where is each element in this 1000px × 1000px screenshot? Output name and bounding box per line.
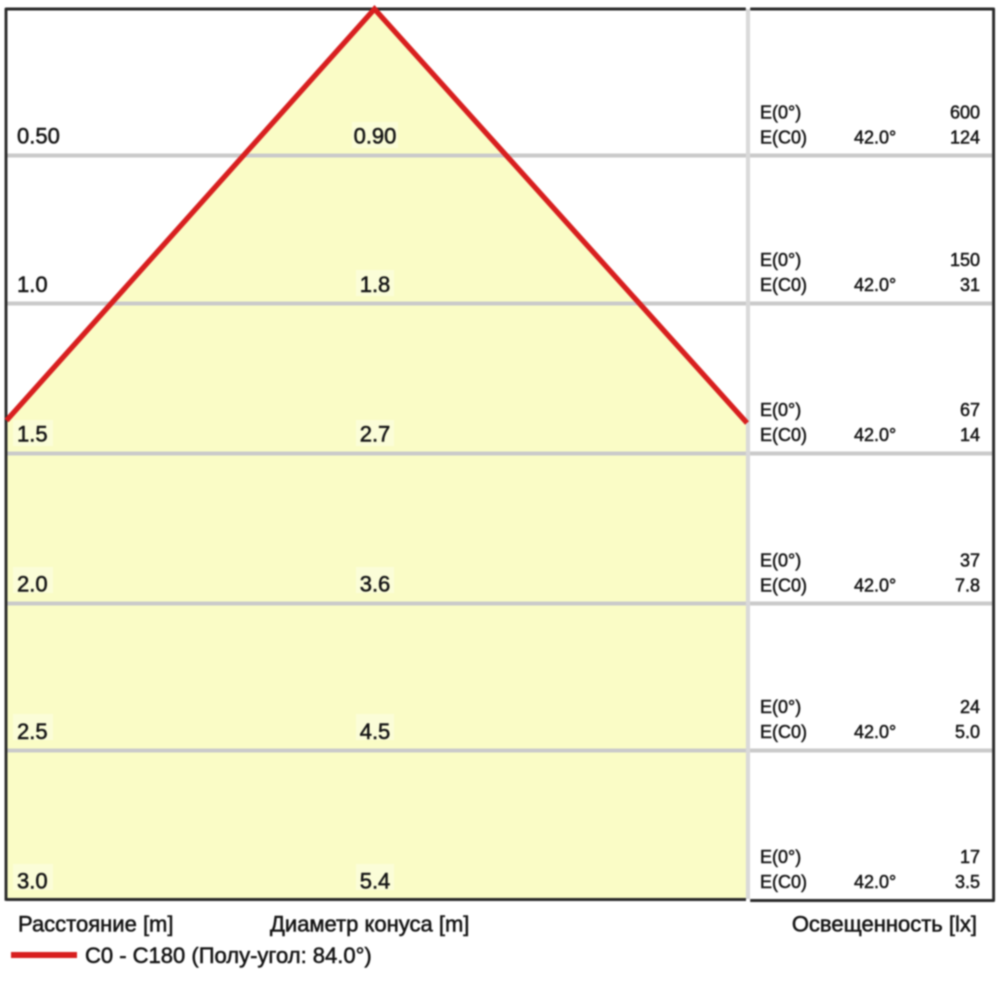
- svg-text:42.0°: 42.0°: [854, 576, 896, 596]
- svg-text:42.0°: 42.0°: [854, 425, 896, 445]
- svg-text:E(0°): E(0°): [760, 847, 801, 867]
- svg-text:2.5: 2.5: [17, 719, 48, 744]
- svg-text:E(C0): E(C0): [760, 275, 807, 295]
- svg-text:5.0: 5.0: [955, 722, 980, 742]
- svg-text:24: 24: [960, 697, 980, 717]
- svg-text:2.0: 2.0: [17, 572, 48, 597]
- svg-text:3.6: 3.6: [360, 572, 391, 597]
- svg-text:Диаметр конуса [m]: Диаметр конуса [m]: [270, 912, 469, 937]
- svg-text:3.5: 3.5: [955, 872, 980, 892]
- svg-text:0.90: 0.90: [354, 124, 397, 149]
- svg-text:E(0°): E(0°): [760, 400, 801, 420]
- svg-text:42.0°: 42.0°: [854, 128, 896, 148]
- svg-text:E(0°): E(0°): [760, 697, 801, 717]
- svg-text:42.0°: 42.0°: [854, 722, 896, 742]
- svg-text:Расстояние [m]: Расстояние [m]: [18, 912, 174, 937]
- svg-text:C0 - C180 (Полу-угол: 84.0°): C0 - C180 (Полу-угол: 84.0°): [85, 943, 372, 968]
- svg-text:600: 600: [950, 103, 980, 123]
- svg-text:2.7: 2.7: [360, 422, 391, 447]
- svg-text:31: 31: [960, 275, 980, 295]
- svg-text:42.0°: 42.0°: [854, 872, 896, 892]
- svg-text:7.8: 7.8: [955, 576, 980, 596]
- svg-text:1.5: 1.5: [17, 422, 48, 447]
- svg-text:5.4: 5.4: [360, 869, 391, 894]
- svg-text:37: 37: [960, 551, 980, 571]
- svg-text:E(0°): E(0°): [760, 103, 801, 123]
- svg-text:0.50: 0.50: [17, 124, 60, 149]
- svg-text:150: 150: [950, 250, 980, 270]
- svg-text:14: 14: [960, 425, 980, 445]
- svg-text:E(0°): E(0°): [760, 250, 801, 270]
- svg-text:E(C0): E(C0): [760, 872, 807, 892]
- svg-text:1.0: 1.0: [17, 272, 48, 297]
- svg-text:124: 124: [950, 128, 980, 148]
- svg-text:Освещенность [lx]: Освещенность [lx]: [792, 912, 977, 937]
- svg-text:E(C0): E(C0): [760, 576, 807, 596]
- svg-text:1.8: 1.8: [360, 272, 391, 297]
- svg-text:67: 67: [960, 400, 980, 420]
- svg-text:3.0: 3.0: [17, 869, 48, 894]
- svg-text:E(C0): E(C0): [760, 425, 807, 445]
- svg-text:E(0°): E(0°): [760, 551, 801, 571]
- svg-text:4.5: 4.5: [360, 719, 391, 744]
- svg-text:42.0°: 42.0°: [854, 275, 896, 295]
- svg-text:17: 17: [960, 847, 980, 867]
- svg-text:E(C0): E(C0): [760, 128, 807, 148]
- svg-text:E(C0): E(C0): [760, 722, 807, 742]
